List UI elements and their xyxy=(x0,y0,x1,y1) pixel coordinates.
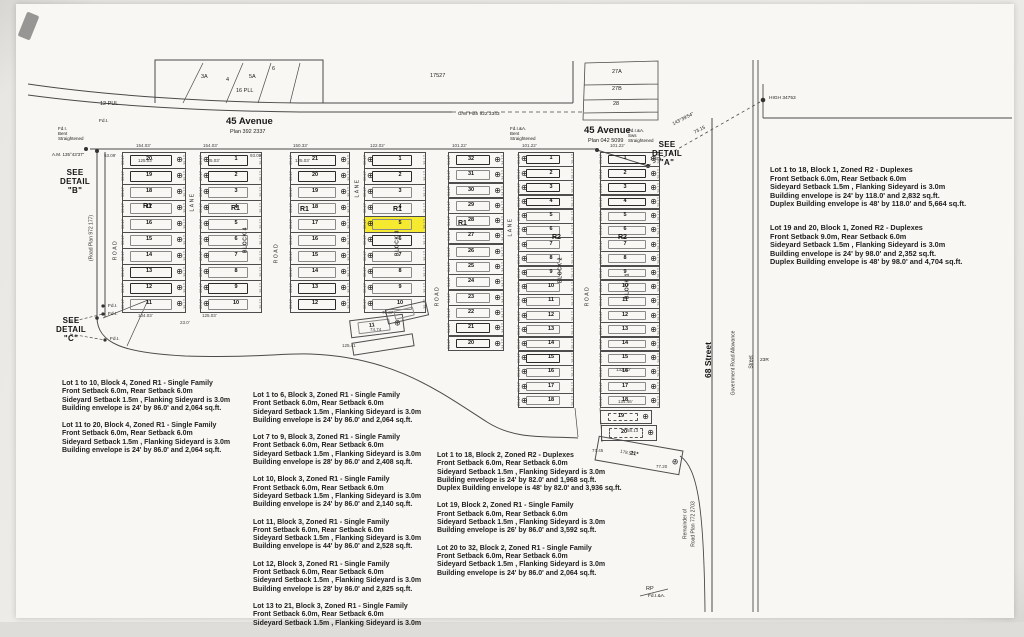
lot-block4-east-6: 6⊕35.1735.17 xyxy=(200,232,262,249)
lot-block4-west-15: 15⊕35.1735.17 xyxy=(122,232,186,249)
edge-dimension: 35.17 xyxy=(259,235,263,245)
lot-block4-east-7: 7⊕35.1735.17 xyxy=(200,248,262,265)
lot-block4-west-17: 17⊕35.1735.17 xyxy=(122,200,186,217)
survey-monument-icon: ⊕ xyxy=(521,311,528,319)
edge-dimension: 35.17 xyxy=(199,299,203,309)
zoning-note: Lot 12, Block 3, Zoned R1 - Single Famil… xyxy=(253,561,421,594)
street-68: 68 Street xyxy=(704,342,713,378)
zone-r2: R2 xyxy=(618,234,627,242)
lot-block1-6: 6⊕25.1725.17 xyxy=(600,223,660,238)
edge-dimension: 25.17 xyxy=(599,197,603,207)
edge-dimension: 25.17 xyxy=(657,367,661,377)
survey-note: Fd.I. xyxy=(99,119,109,125)
lot-block2-east-17: 17⊕25.1725.17 xyxy=(518,379,574,394)
survey-monument-icon: ⊕ xyxy=(203,252,210,260)
zoning-note: Lot 20 to 32, Block 2, Zoned R1 - Single… xyxy=(437,545,622,578)
edge-dimension: 25.17 xyxy=(571,325,575,335)
lot-block4-east-8: 8⊕35.1735.17 xyxy=(200,264,262,281)
lane-label: LANE xyxy=(356,178,361,197)
lot-block1-13: 13⊕25.1725.17 xyxy=(600,322,660,337)
edge-dimension: 35.17 xyxy=(199,171,203,181)
block-4-label: BLOCK 4 xyxy=(244,227,249,253)
lot-number: 7 xyxy=(201,253,261,259)
dimension-label: 79.37 xyxy=(382,311,393,316)
edge-dimension: 35.17 xyxy=(423,283,427,293)
edge-dimension: 34.17 xyxy=(501,247,505,257)
edge-dimension: 35.17 xyxy=(259,283,263,293)
edge-dimension: 25.17 xyxy=(571,282,575,292)
lot-block1-8: 8⊕25.1725.17 xyxy=(600,251,660,266)
edge-dimension: 35.17 xyxy=(183,187,187,197)
edge-dimension: 35.17 xyxy=(363,251,367,261)
edge-dimension: 25.17 xyxy=(657,268,661,278)
edge-dimension: 34.17 xyxy=(501,201,505,211)
edge-dimension: 25.17 xyxy=(599,353,603,363)
survey-monument-icon: ⊕ xyxy=(521,212,528,220)
edge-dimension: 35.17 xyxy=(423,203,427,213)
dimension-label: 23.0' xyxy=(180,321,190,326)
see-detail-a: SEEDETAIL"A" xyxy=(652,140,682,168)
survey-monument-icon: ⊕ xyxy=(367,204,374,212)
edge-dimension: 35.17 xyxy=(347,187,351,197)
lot-block2-west-31: 31⊕34.1734.17 xyxy=(448,167,504,183)
edge-dimension: 25.17 xyxy=(571,254,575,264)
edge-dimension: 35.17 xyxy=(289,187,293,197)
edge-dimension: 34.17 xyxy=(501,155,505,165)
lot-block1-14: 14⊕25.1725.17 xyxy=(600,337,660,352)
edge-dimension: 35.17 xyxy=(423,187,427,197)
edge-dimension: 35.17 xyxy=(423,155,427,165)
edge-dimension: 35.17 xyxy=(199,251,203,261)
zone-r1: R1 xyxy=(300,206,309,214)
edge-dimension: 25.17 xyxy=(657,282,661,292)
lot-block2-east-13: 13⊕25.1725.17 xyxy=(518,322,574,337)
edge-dimension: 35.17 xyxy=(199,267,203,277)
edge-dimension: 35.17 xyxy=(121,299,125,309)
edge-dimension: 35.17 xyxy=(183,155,187,165)
edge-dimension: 25.17 xyxy=(517,169,521,179)
road-label: ROAD xyxy=(275,243,280,263)
lot-block3-west-16: 16⊕35.1735.17 xyxy=(290,232,350,249)
lot-number: 5 xyxy=(201,221,261,227)
lot-block3-west-19: 19⊕35.1735.17 xyxy=(290,184,350,201)
edge-dimension: 25.17 xyxy=(571,296,575,306)
lot-number: 2 xyxy=(365,173,425,179)
survey-note: Fd.I. xyxy=(108,312,118,318)
edge-dimension: 25.17 xyxy=(657,353,661,363)
edge-dimension: 25.17 xyxy=(517,325,521,335)
survey-note: Fd.I. xyxy=(108,304,118,310)
edge-dimension: 25.17 xyxy=(657,296,661,306)
edge-dimension: 25.17 xyxy=(571,382,575,392)
lot-label-6: 6 xyxy=(272,66,275,72)
lot-block2-west-24: 24⊕34.1734.17 xyxy=(448,274,504,290)
dimension-label: 101.22' xyxy=(610,144,625,149)
dimension-label: 122.02' xyxy=(370,144,385,149)
lot-number: 9 xyxy=(365,285,425,291)
edge-dimension: 25.17 xyxy=(517,240,521,250)
edge-dimension: 35.17 xyxy=(199,219,203,229)
edge-dimension: 34.17 xyxy=(501,277,505,287)
edge-dimension: 25.17 xyxy=(517,339,521,349)
edge-dimension: 25.17 xyxy=(517,197,521,207)
zoning-note: Lot 19 and 20, Block 1, Zoned R2 - Duple… xyxy=(770,224,966,267)
lot-block4-west-14: 14⊕35.1735.17 xyxy=(122,248,186,265)
road-label: ROAD xyxy=(586,286,591,306)
dimension-label: 154.03' xyxy=(203,144,218,149)
survey-monument-icon: ⊕ xyxy=(647,429,654,437)
edge-dimension: 35.17 xyxy=(363,203,367,213)
edge-dimension: 25.17 xyxy=(517,311,521,321)
lot-block1-7: 7⊕25.1725.17 xyxy=(600,237,660,252)
edge-dimension: 25.17 xyxy=(571,396,575,406)
zoning-note: Lot 1 to 18, Block 2, Zoned R2 - Duplexe… xyxy=(437,452,622,493)
edge-dimension: 25.17 xyxy=(599,396,603,406)
survey-monument-icon: ⊕ xyxy=(521,240,528,248)
road-plan-left-label: (Road Plan 972 177) xyxy=(90,215,95,261)
lot-block2-west-28: 28⊕34.1734.17 xyxy=(448,213,504,229)
dimension-label: 74.74 xyxy=(370,328,381,333)
edge-dimension: 35.17 xyxy=(347,219,351,229)
zoning-note: Lot 1 to 10, Block 4, Zoned R1 - Single … xyxy=(62,380,230,413)
edge-dimension: 35.17 xyxy=(347,155,351,165)
edge-dimension: 35.17 xyxy=(199,155,203,165)
dimension-label: 125.41 xyxy=(342,344,356,349)
lot-number: 3 xyxy=(365,189,425,195)
survey-monument-icon: ⊕ xyxy=(521,368,528,376)
dimension-label: 101.22' xyxy=(522,144,537,149)
zoning-notes-2: Lot 1 to 6, Block 3, Zoned R1 - Single F… xyxy=(253,392,421,637)
dimension-label: 150.33' xyxy=(293,144,308,149)
edge-dimension: 35.17 xyxy=(183,299,187,309)
lot-number: 5 xyxy=(365,221,425,227)
lot-block4-west-13: 13⊕35.1735.17 xyxy=(122,264,186,281)
edge-dimension: 34.17 xyxy=(447,170,451,180)
dimension-label: 125.03' xyxy=(295,159,310,164)
lot-block1-17: 17⊕25.1725.17 xyxy=(600,379,660,394)
edge-dimension: 34.17 xyxy=(501,308,505,318)
survey-monument-icon: ⊕ xyxy=(367,188,374,196)
dimension-label: 53.09' xyxy=(104,154,116,159)
survey-monument-icon: ⊕ xyxy=(642,413,649,421)
lot-number: 9 xyxy=(201,285,261,291)
survey-monument-icon: ⊕ xyxy=(671,457,679,466)
lot-block2-east-6: 6⊕25.1725.17 xyxy=(518,223,574,238)
lot-block3-west-17: 17⊕35.1735.17 xyxy=(290,216,350,233)
lot-block2-west-21: 21⊕34.1734.17 xyxy=(448,320,504,336)
edge-dimension: 35.17 xyxy=(121,219,125,229)
edge-dimension: 25.17 xyxy=(571,183,575,193)
lot-label-5a: 5A xyxy=(249,74,256,80)
edge-dimension: 35.17 xyxy=(183,251,187,261)
road-label: ROAD xyxy=(436,286,441,306)
survey-monument-icon: ⊕ xyxy=(367,268,374,276)
lot-block2-east-11: 11⊕25.1725.17 xyxy=(518,294,574,309)
zoning-note: Lot 11, Block 3, Zoned R1 - Single Famil… xyxy=(253,519,421,552)
lot-block4-west-19: 19⊕35.1735.17 xyxy=(122,168,186,185)
edge-dimension: 25.17 xyxy=(599,382,603,392)
survey-monument-icon: ⊕ xyxy=(521,169,528,177)
edge-dimension: 35.17 xyxy=(289,203,293,213)
edge-dimension: 25.17 xyxy=(571,353,575,363)
survey-monument-icon: ⊕ xyxy=(203,300,210,308)
zone-r2: R2 xyxy=(552,234,561,242)
edge-dimension: 25.17 xyxy=(517,367,521,377)
edge-dimension: 25.17 xyxy=(571,367,575,377)
edge-dimension: 34.17 xyxy=(501,231,505,241)
survey-monument-icon: ⊕ xyxy=(203,188,210,196)
edge-dimension: 25.17 xyxy=(657,183,661,193)
block-3-label: BLOCK 3 xyxy=(396,230,401,256)
edge-dimension: 34.17 xyxy=(501,262,505,272)
survey-monument-icon: ⊕ xyxy=(521,269,528,277)
lot-block2-west-26: 26⊕34.1734.17 xyxy=(448,244,504,260)
edge-dimension: 35.17 xyxy=(121,235,125,245)
edge-dimension: 34.17 xyxy=(447,339,451,349)
edge-dimension: 25.17 xyxy=(517,254,521,264)
lot-block3-west-20: 20⊕35.1735.17 xyxy=(290,168,350,185)
edge-dimension: 34.17 xyxy=(447,201,451,211)
edge-dimension: 35.17 xyxy=(121,171,125,181)
lot-block3-west-12: 12⊕35.1735.17 xyxy=(290,296,350,313)
edge-dimension: 35.17 xyxy=(183,283,187,293)
lot-block3-east-9: 9⊕35.1735.17 xyxy=(364,280,426,297)
edge-dimension: 25.17 xyxy=(571,154,575,164)
distance-label: 73.15 xyxy=(693,126,706,136)
survey-monument-icon: ⊕ xyxy=(367,284,374,292)
edge-dimension: 35.17 xyxy=(363,299,367,309)
lot-block2-west-25: 25⊕34.1734.17 xyxy=(448,259,504,275)
label-12-pul: 12 PUL xyxy=(100,101,118,107)
lot-number: 8 xyxy=(365,269,425,275)
edge-dimension: 25.17 xyxy=(599,339,603,349)
lot-block2-east-9: 9⊕25.1725.17 xyxy=(518,266,574,281)
lane-label: LANE xyxy=(191,192,196,211)
edge-dimension: 35.17 xyxy=(289,267,293,277)
edge-dimension: 34.17 xyxy=(447,323,451,333)
lot-label-4: 4 xyxy=(226,77,229,83)
survey-monument-icon: ⊕ xyxy=(203,268,210,276)
edge-dimension: 35.17 xyxy=(259,171,263,181)
survey-monument-icon: ⊕ xyxy=(521,226,528,234)
survey-monument-icon: ⊕ xyxy=(521,326,528,334)
edge-dimension: 35.17 xyxy=(199,283,203,293)
edge-dimension: 25.17 xyxy=(657,382,661,392)
edge-dimension: 35.17 xyxy=(183,219,187,229)
survey-monument-icon: ⊕ xyxy=(367,156,374,164)
plan-number-west: Plan 392 2337 xyxy=(230,129,265,135)
edge-dimension: 35.17 xyxy=(363,235,367,245)
lot-block1-3: 3⊕25.1725.17 xyxy=(600,180,660,195)
survey-note: Fd.I. xyxy=(110,337,120,343)
edge-dimension: 34.17 xyxy=(447,277,451,287)
lot-block3-west-18: 18⊕35.1735.17 xyxy=(290,200,350,217)
edge-dimension: 35.17 xyxy=(347,235,351,245)
lot-block2-east-10: 10⊕25.1725.17 xyxy=(518,280,574,295)
edge-dimension: 35.17 xyxy=(347,203,351,213)
edge-dimension: 25.17 xyxy=(571,197,575,207)
lot-block2-west-32: 32⊕34.1734.17 xyxy=(448,152,504,168)
edge-dimension: 25.17 xyxy=(657,225,661,235)
lot-label-27b: 27B xyxy=(612,86,622,92)
lot-block2-east-3: 3⊕25.1725.17 xyxy=(518,180,574,195)
survey-monument-icon: ⊕ xyxy=(521,184,528,192)
edge-dimension: 25.17 xyxy=(517,211,521,221)
lot-number: 1 xyxy=(365,157,425,163)
edge-dimension: 35.17 xyxy=(423,171,427,181)
monument-label: HIGH 34753 xyxy=(769,96,796,102)
survey-monument-icon: ⊕ xyxy=(203,236,210,244)
survey-monument-icon: ⊕ xyxy=(521,155,528,163)
edge-dimension: 25.17 xyxy=(599,169,603,179)
edge-dimension: 35.17 xyxy=(347,251,351,261)
survey-monument-icon: ⊕ xyxy=(367,172,374,180)
lot-block4-west-18: 18⊕35.1735.17 xyxy=(122,184,186,201)
survey-note: Fd.I.BentStraightened xyxy=(58,126,84,142)
zoning-note: Lot 1 to 18, Block 1, Zoned R2 - Duplexe… xyxy=(770,166,966,209)
edge-dimension: 35.17 xyxy=(183,235,187,245)
edge-dimension: 35.17 xyxy=(183,267,187,277)
lot-block1-5: 5⊕25.1725.17 xyxy=(600,209,660,224)
dimension-label: 14.21 xyxy=(650,157,661,162)
lot-block2-east-4: 4⊕25.1725.17 xyxy=(518,195,574,210)
lot-block3-west-15: 15⊕35.1735.17 xyxy=(290,248,350,265)
edge-dimension: 25.17 xyxy=(599,254,603,264)
edge-dimension: 35.17 xyxy=(289,283,293,293)
lot-block2-east-7: 7⊕25.1725.17 xyxy=(518,237,574,252)
lot-block2-west-27: 27⊕34.1734.17 xyxy=(448,229,504,245)
edge-dimension: 35.17 xyxy=(423,251,427,261)
edge-dimension: 25.17 xyxy=(571,240,575,250)
zoning-notes-3: Lot 1 to 18, Block 2, Zoned R2 - Duplexe… xyxy=(437,452,622,587)
remainder-label: Remainder of xyxy=(684,509,689,539)
plat-layer: 20⊕35.1735.1719⊕35.1735.1718⊕35.1735.171… xyxy=(0,0,1024,622)
edge-dimension: 35.17 xyxy=(199,203,203,213)
edge-dimension: 35.17 xyxy=(183,171,187,181)
lot-block2-east-18: 18⊕25.1725.17 xyxy=(518,393,574,408)
zoning-note: Lot 7 to 9, Block 3, Zoned R1 - Single F… xyxy=(253,434,421,467)
edge-dimension: 34.17 xyxy=(501,216,505,226)
edge-dimension: 35.17 xyxy=(347,267,351,277)
edge-dimension: 25.17 xyxy=(599,268,603,278)
edge-dimension: 35.17 xyxy=(199,187,203,197)
edge-dimension: 25.17 xyxy=(571,311,575,321)
edge-dimension: 35.17 xyxy=(363,171,367,181)
edge-dimension: 35.17 xyxy=(363,219,367,229)
survey-note: A.M. 135°43'37" xyxy=(52,152,84,157)
edge-dimension: 25.17 xyxy=(657,240,661,250)
edge-dimension: 35.17 xyxy=(121,155,125,165)
edge-dimension: 25.17 xyxy=(571,268,575,278)
edge-dimension: 25.17 xyxy=(599,183,603,193)
edge-dimension: 34.17 xyxy=(447,216,451,226)
edge-dimension: 25.17 xyxy=(517,282,521,292)
dimension-label: 154.03' xyxy=(136,144,151,149)
edge-dimension: 25.17 xyxy=(599,225,603,235)
block1-lot-19: 19⊕ xyxy=(600,410,652,424)
edge-dimension: 35.17 xyxy=(423,267,427,277)
survey-monument-icon: ⊕ xyxy=(521,382,528,390)
lot-block2-east-12: 12⊕25.1725.17 xyxy=(518,308,574,323)
street-45-avenue-east: 45 Avenue xyxy=(584,126,631,137)
lot-block4-west-16: 16⊕35.1735.17 xyxy=(122,216,186,233)
edge-dimension: 34.17 xyxy=(447,308,451,318)
lot-block1-15: 15⊕25.1725.17 xyxy=(600,351,660,366)
edge-dimension: 25.17 xyxy=(517,268,521,278)
lot-block4-east-9: 9⊕35.1735.17 xyxy=(200,280,262,297)
block-2-label: BLOCK 2 xyxy=(559,257,564,283)
zone-r1: R1 xyxy=(458,220,467,228)
dimension-label: 58.13 xyxy=(627,429,638,434)
survey-monument-icon: ⊕ xyxy=(521,340,528,348)
dimension-label: 77.20 xyxy=(656,465,667,470)
edge-dimension: 34.17 xyxy=(501,170,505,180)
edge-dimension: 25.17 xyxy=(599,282,603,292)
survey-monument-icon: ⊕ xyxy=(203,204,210,212)
lot-block3-west-14: 14⊕35.1735.17 xyxy=(290,264,350,281)
zoning-note: Lot 10, Block 3, Zoned R1 - Single Famil… xyxy=(253,476,421,509)
lot-block4-east-3: 3⊕35.1735.17 xyxy=(200,184,262,201)
edge-dimension: 34.17 xyxy=(447,247,451,257)
lot-block2-east-15: 15⊕25.1725.17 xyxy=(518,351,574,366)
edge-dimension: 25.17 xyxy=(599,154,603,164)
building-envelope xyxy=(393,307,415,320)
gov-road-allowance-label: Government Road Allowance xyxy=(732,331,737,396)
edge-dimension: 34.17 xyxy=(447,186,451,196)
survey-monument-icon: ⊕ xyxy=(521,255,528,263)
edge-dimension: 25.17 xyxy=(657,311,661,321)
lot-block2-west-23: 23⊕34.1734.17 xyxy=(448,290,504,306)
road-label: ROAD xyxy=(114,240,119,260)
lot-block1-12: 12⊕25.1725.17 xyxy=(600,308,660,323)
edge-dimension: 25.17 xyxy=(657,197,661,207)
lot-block3-east-3: 3⊕35.1735.17 xyxy=(364,184,426,201)
edge-dimension: 35.17 xyxy=(199,235,203,245)
edge-dimension: 35.17 xyxy=(259,203,263,213)
edge-dimension: 34.17 xyxy=(501,293,505,303)
lot-block3-west-13: 13⊕35.1735.17 xyxy=(290,280,350,297)
edge-dimension: 35.17 xyxy=(423,235,427,245)
remainder-plan-label: Road Plan 772 2703 xyxy=(692,501,697,547)
lot-block2-east-2: 2⊕25.1725.17 xyxy=(518,166,574,181)
street-45-avenue-west: 45 Avenue xyxy=(226,117,273,128)
lot-block4-west-12: 12⊕35.1735.17 xyxy=(122,280,186,297)
survey-note: Fd.I.&A.SwsStraightened xyxy=(628,128,654,144)
bearing-label: 143°39'54" xyxy=(672,112,695,127)
lot-number: 2 xyxy=(201,173,261,179)
zone-r1: R1 xyxy=(231,205,240,213)
edge-dimension: 35.17 xyxy=(289,299,293,309)
lot-number: 10 xyxy=(201,301,261,307)
edge-dimension: 35.17 xyxy=(289,251,293,261)
lot-block3-east-1: 1⊕35.1735.17 xyxy=(364,152,426,169)
label-17527: 17527 xyxy=(430,73,445,79)
survey-note: Fd.I.&A. xyxy=(648,594,665,600)
survey-note: RP xyxy=(646,586,654,592)
lot-block1-4: 4⊕25.1725.17 xyxy=(600,195,660,210)
lot-block1-2: 2⊕25.1725.17 xyxy=(600,166,660,181)
block-1-label: BLOCK 1 xyxy=(626,273,631,299)
edge-dimension: 35.17 xyxy=(121,267,125,277)
edge-dimension: 25.17 xyxy=(599,296,603,306)
lot-label-3a: 3A xyxy=(201,74,208,80)
edge-dimension: 35.17 xyxy=(363,187,367,197)
parcel-label-23r: 23R xyxy=(760,358,769,364)
edge-dimension: 25.17 xyxy=(517,154,521,164)
survey-monument-icon: ⊕ xyxy=(367,236,374,244)
dimension-label: 134.46' xyxy=(618,400,633,405)
lot-block2-east-16: 16⊕25.1725.17 xyxy=(518,365,574,380)
